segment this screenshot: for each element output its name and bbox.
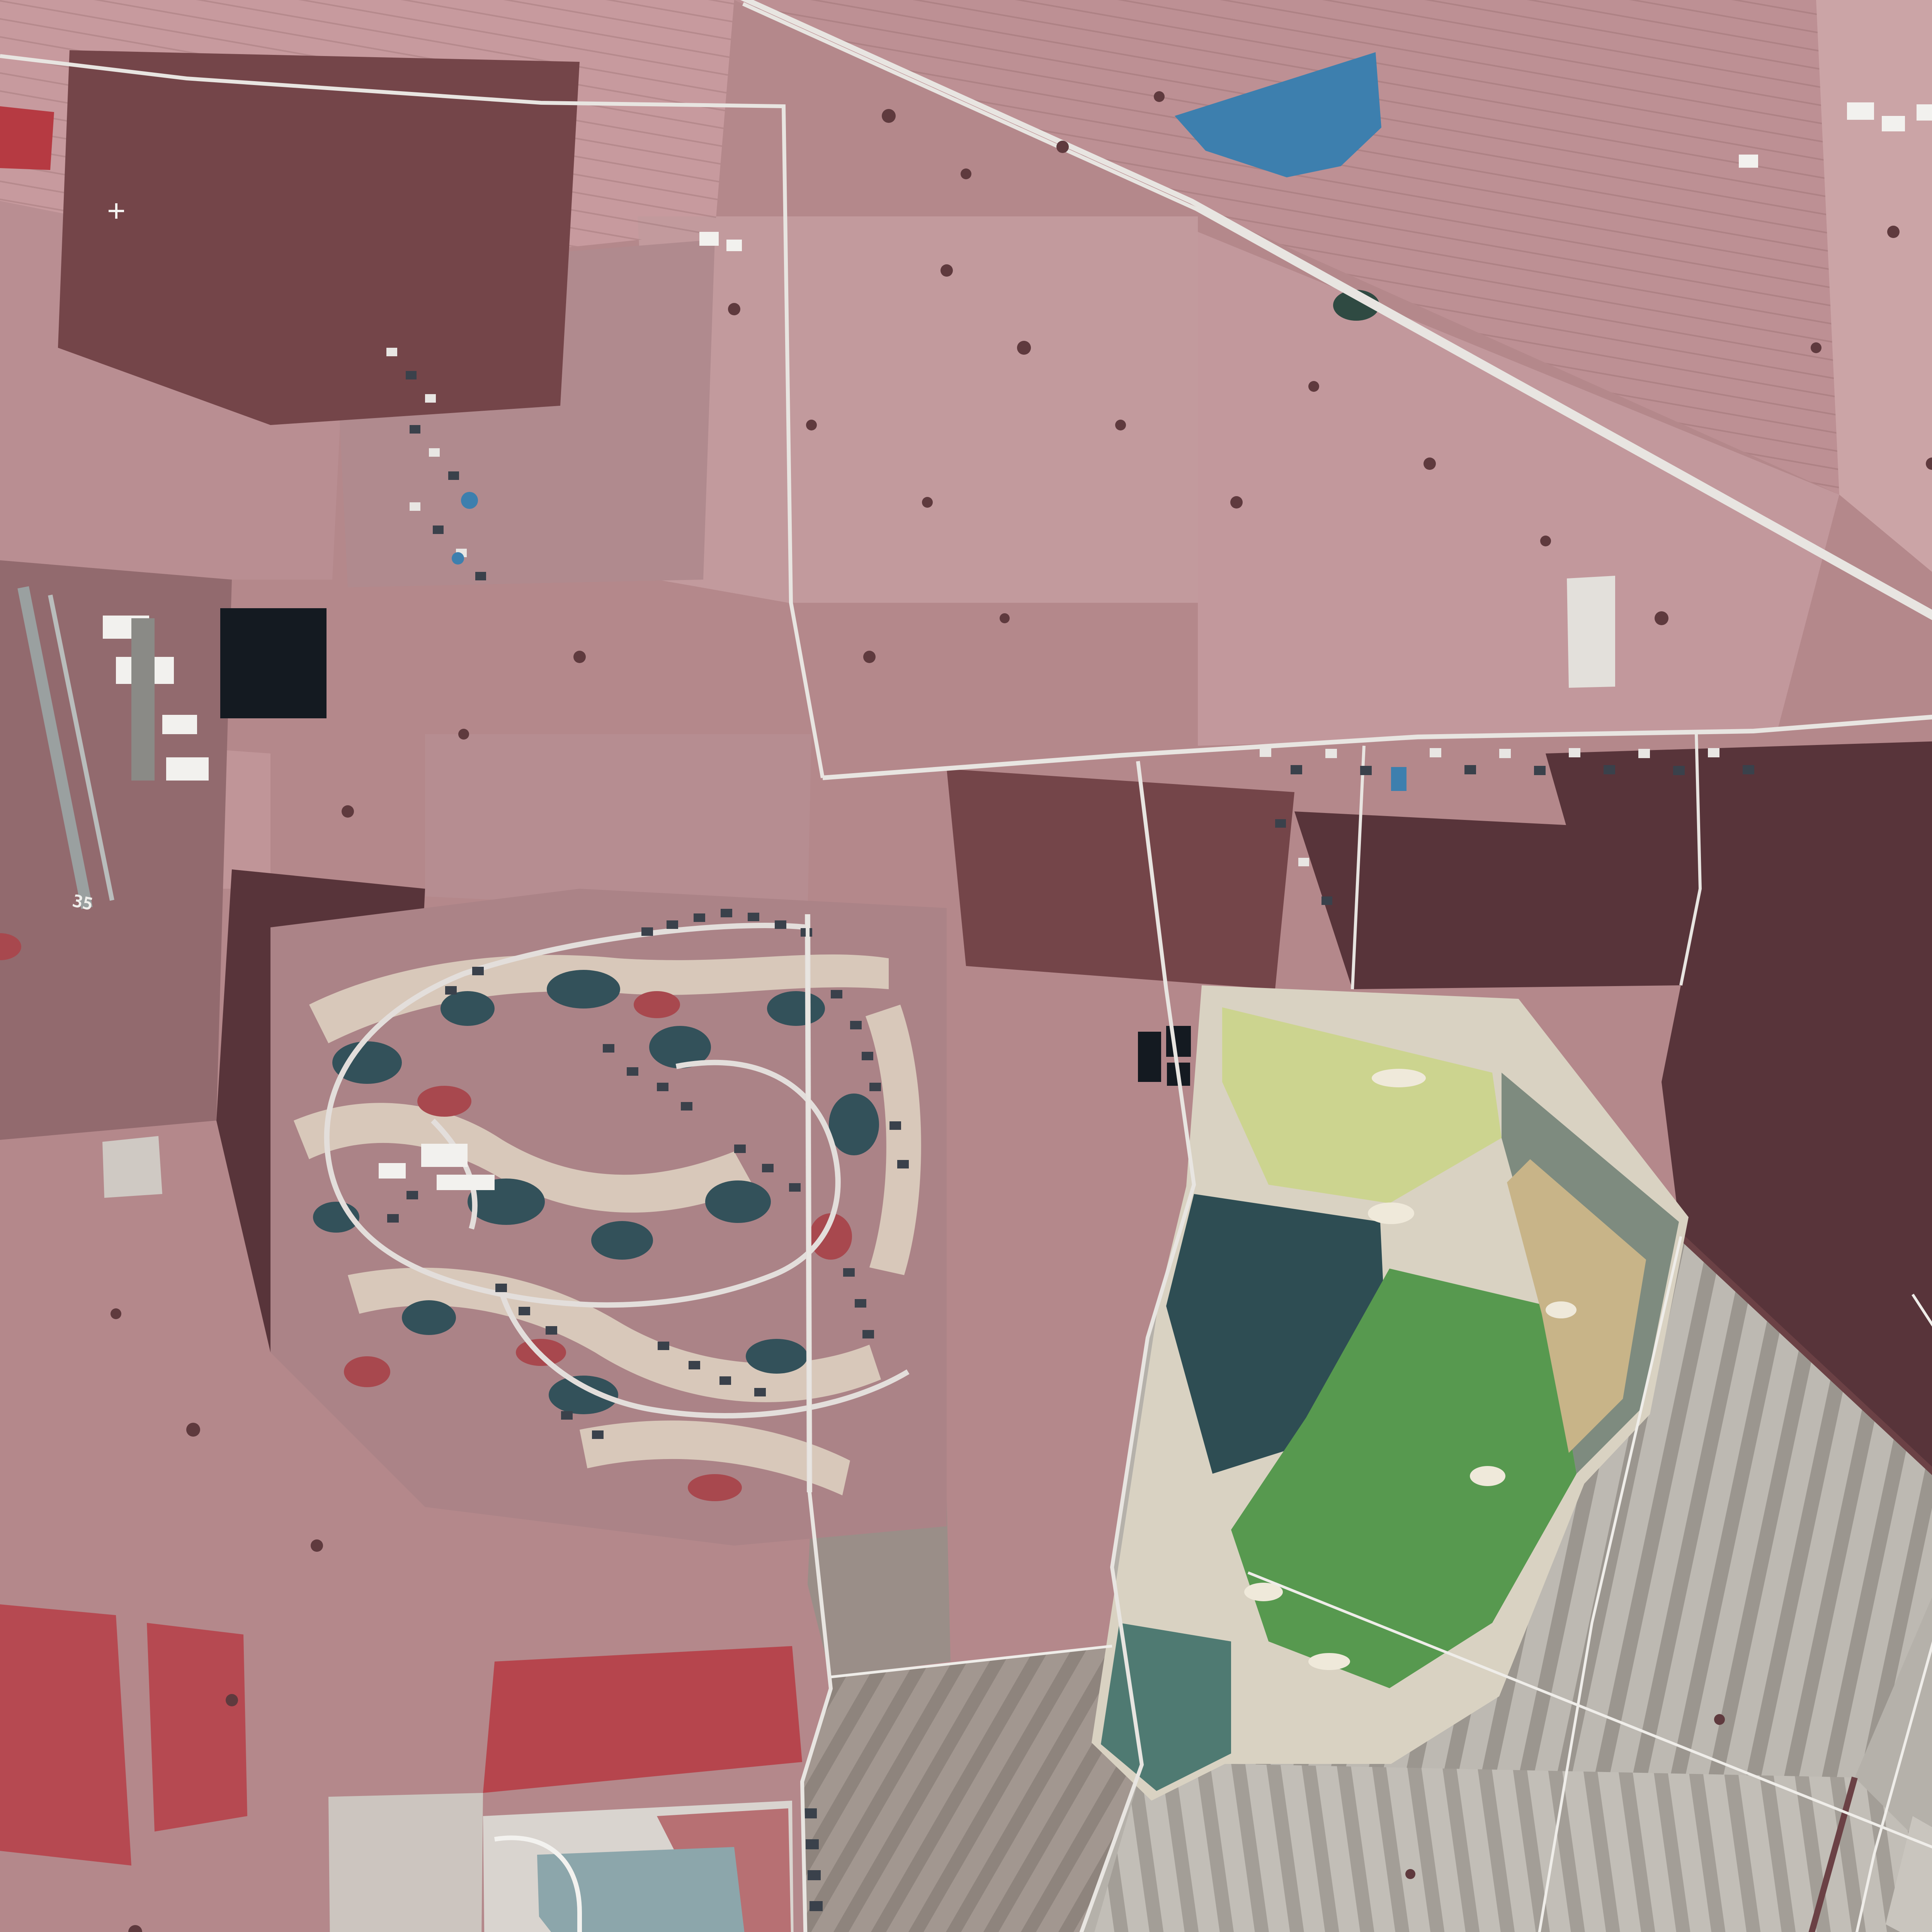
village-pond bbox=[1391, 767, 1406, 791]
construction-subdivision bbox=[483, 1801, 830, 1932]
airport-reservoir bbox=[220, 608, 327, 718]
aerial-photo-canvas: 35 bbox=[0, 0, 1932, 1932]
retention-pond bbox=[537, 1847, 746, 1932]
runway-number: 35 bbox=[71, 891, 95, 915]
